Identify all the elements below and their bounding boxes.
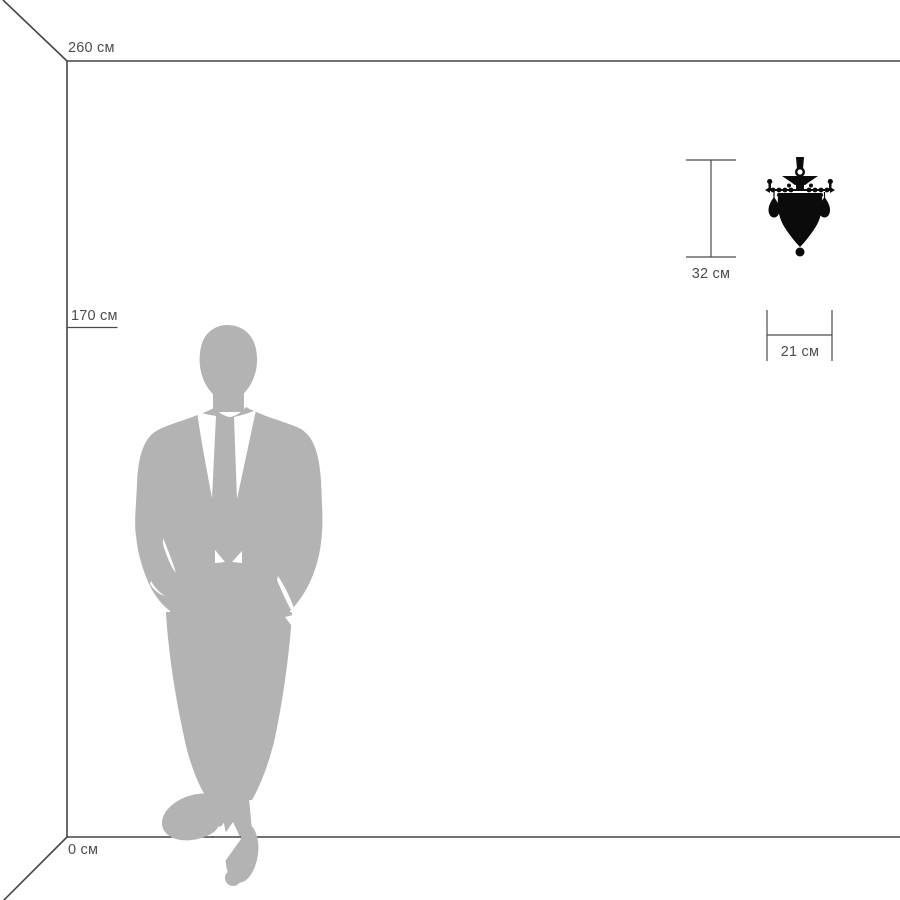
corner-diagonal-top-left	[3, 0, 67, 61]
man-legs	[166, 612, 292, 800]
fixture-width-label: 21 см	[774, 344, 826, 360]
sconce-bobeche	[782, 176, 818, 185]
floor-level-label: 0 см	[68, 842, 98, 858]
fixture-height-dimension	[686, 160, 736, 257]
corner-diagonal-bottom-left	[0, 837, 67, 900]
sconce-bottom-ball	[796, 248, 805, 257]
sconce-parts	[765, 157, 835, 257]
man-torso	[135, 407, 322, 618]
man-body	[135, 325, 322, 886]
fixture-height-label: 32 см	[686, 266, 736, 282]
size-diagram: 260 см 170 см 0 см 32 см 21 см	[0, 0, 900, 900]
wall-height-label: 260 см	[68, 40, 115, 56]
man-silhouette-icon	[130, 322, 330, 892]
person-height-label: 170 см	[71, 308, 118, 324]
wall-sconce-icon	[765, 156, 835, 260]
sconce-body	[778, 197, 822, 247]
